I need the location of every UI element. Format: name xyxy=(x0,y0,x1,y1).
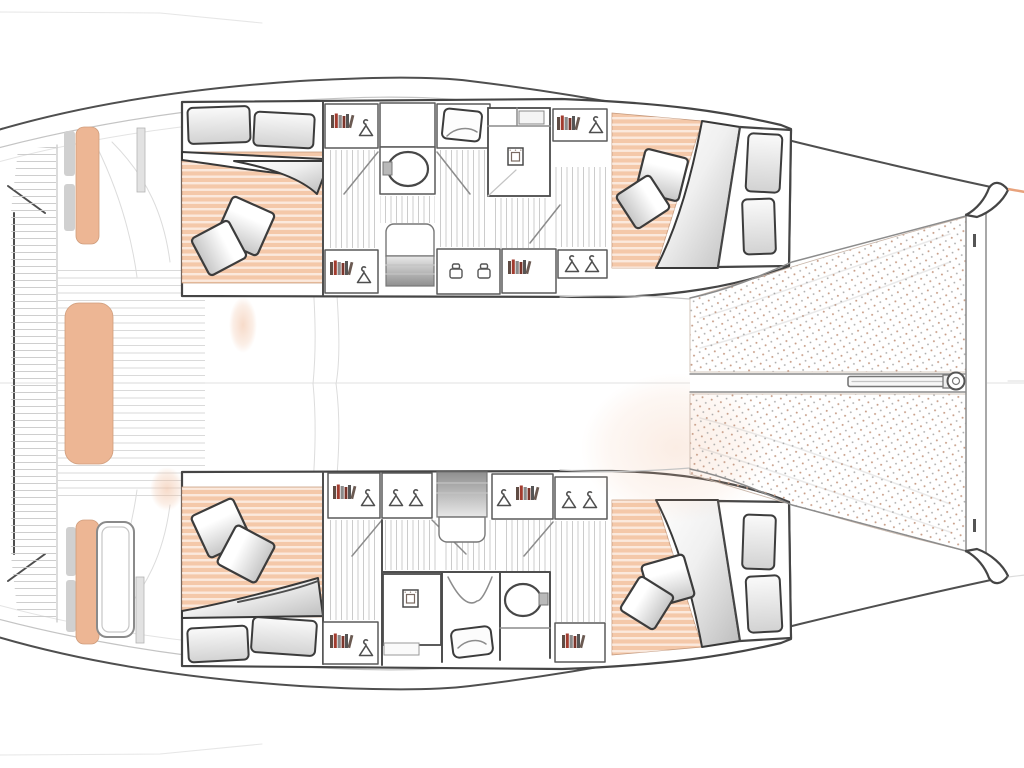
corridor-floor xyxy=(326,150,378,248)
berth-cushion xyxy=(251,617,317,656)
port-bow-tip xyxy=(966,183,1008,217)
corridor-floor xyxy=(555,521,607,622)
helm-console xyxy=(136,577,144,643)
aft-centre-bench xyxy=(65,303,113,464)
berth-cushion xyxy=(746,575,783,633)
stairs xyxy=(437,472,487,517)
corridor-floor xyxy=(437,150,488,247)
bow-accent xyxy=(1008,189,1024,192)
forward-crossbeam xyxy=(966,213,987,553)
shower-tray xyxy=(450,626,493,659)
starboard-transom-bench xyxy=(76,520,99,644)
washbasin xyxy=(388,152,428,186)
berth-cushion xyxy=(187,625,249,662)
corridor-floor xyxy=(502,520,553,573)
deck-shading xyxy=(150,467,184,511)
port-transom-bench-backrest xyxy=(64,184,75,231)
port-transom-bench xyxy=(76,127,99,244)
corridor-floor xyxy=(553,167,610,247)
starboard-aft-cabin xyxy=(182,472,323,664)
stairs-landing xyxy=(439,517,485,542)
stairs xyxy=(386,256,434,286)
berth-cushion xyxy=(742,514,776,569)
wardrobe xyxy=(382,473,432,518)
wc-panel-icon xyxy=(403,590,418,607)
washbasin xyxy=(505,584,541,616)
port-forward-cabin xyxy=(612,113,791,268)
starboard-bow-tip xyxy=(966,549,1008,583)
headboard-cushion xyxy=(253,111,315,148)
deck-shading xyxy=(229,297,257,353)
port-transom-bench-backrest xyxy=(64,131,75,176)
starboard-transom-bench-backrest xyxy=(66,580,76,632)
crossbeam-cleat xyxy=(973,234,976,247)
shower-tray xyxy=(442,108,483,142)
helm-console xyxy=(137,128,145,192)
port-hull-interior xyxy=(182,99,791,297)
wc-cabinet xyxy=(384,643,419,655)
corridor-floor xyxy=(492,198,550,248)
starboard-forward-cabin xyxy=(612,500,791,655)
corridor-floor xyxy=(382,520,440,570)
berth-cushion xyxy=(742,198,776,254)
wardrobe xyxy=(558,250,607,278)
teak-platform xyxy=(11,146,56,623)
wc-panel-icon xyxy=(508,148,523,165)
bow-line-faint xyxy=(1008,575,1024,577)
forestay-fitting xyxy=(948,373,965,390)
catamaran-layout-plan xyxy=(0,0,1024,768)
wc-cistern xyxy=(519,111,544,124)
wc-compartment xyxy=(383,574,441,645)
corridor-floor xyxy=(380,196,435,223)
berth-cushion xyxy=(746,133,783,193)
stairs-landing xyxy=(386,224,434,256)
headboard-cushion xyxy=(187,106,250,144)
davit-line-top xyxy=(0,12,262,23)
crossbeam-cleat xyxy=(973,519,976,532)
faucet xyxy=(383,162,392,175)
faucet xyxy=(539,593,548,605)
starboard-transom-bench-backrest xyxy=(66,527,76,576)
davit-line-bottom xyxy=(0,744,262,755)
cabinet xyxy=(380,103,435,147)
cockpit-moulding-line xyxy=(97,147,137,277)
